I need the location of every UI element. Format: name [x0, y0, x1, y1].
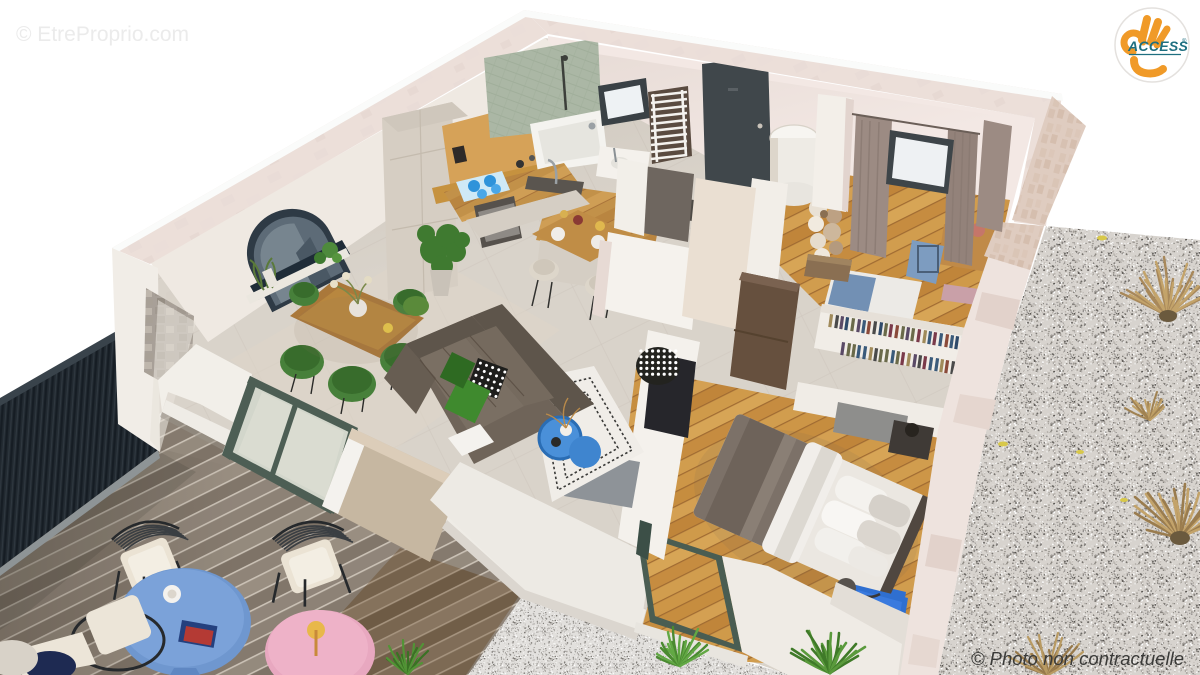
svg-text:®: ® [1182, 38, 1187, 45]
svg-text:© EtreProprio.com: © EtreProprio.com [16, 23, 189, 46]
svg-text:ACCESS: ACCESS [1127, 38, 1189, 54]
svg-text:© Photo non contractuelle: © Photo non contractuelle [971, 648, 1184, 669]
